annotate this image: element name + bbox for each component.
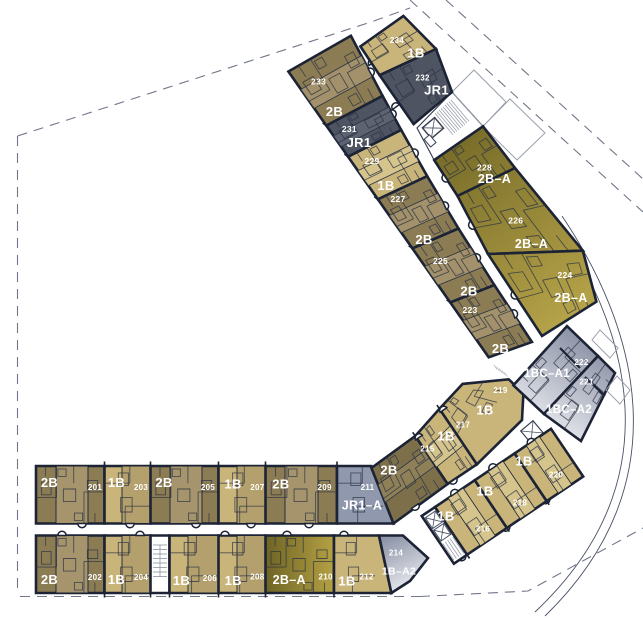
svg-text:227: 227	[390, 194, 405, 204]
svg-text:2B: 2B	[492, 341, 509, 356]
svg-text:202: 202	[88, 573, 102, 582]
svg-text:1B: 1B	[515, 454, 532, 469]
svg-text:209: 209	[317, 483, 331, 492]
svg-text:1B: 1B	[225, 573, 242, 588]
svg-text:2B: 2B	[272, 476, 289, 491]
svg-text:2B–A: 2B–A	[478, 172, 511, 186]
svg-text:2B: 2B	[415, 232, 432, 247]
svg-text:2B: 2B	[155, 475, 172, 490]
svg-text:2B: 2B	[380, 463, 397, 478]
svg-text:2B–A: 2B–A	[273, 573, 306, 587]
svg-text:219: 219	[493, 386, 507, 395]
svg-text:225: 225	[433, 256, 448, 266]
svg-text:1B: 1B	[437, 429, 454, 444]
svg-text:1B: 1B	[108, 475, 125, 490]
svg-text:211: 211	[361, 483, 375, 492]
svg-text:220: 220	[549, 471, 563, 480]
svg-text:226: 226	[508, 216, 523, 226]
svg-text:206: 206	[203, 574, 217, 583]
svg-text:204: 204	[134, 573, 148, 582]
svg-text:216: 216	[476, 525, 490, 534]
svg-text:1B: 1B	[377, 178, 394, 193]
svg-text:228: 228	[477, 163, 492, 173]
svg-text:1B: 1B	[108, 572, 125, 587]
svg-text:2B: 2B	[41, 475, 58, 490]
svg-text:224: 224	[557, 270, 572, 280]
svg-text:1B: 1B	[476, 403, 493, 418]
svg-text:208: 208	[250, 573, 264, 582]
svg-text:201: 201	[88, 483, 102, 492]
svg-text:1B: 1B	[338, 573, 355, 588]
svg-text:210: 210	[318, 573, 332, 582]
svg-text:JR1: JR1	[347, 135, 372, 150]
svg-text:1B: 1B	[407, 46, 424, 61]
svg-text:222: 222	[574, 358, 588, 367]
svg-text:218: 218	[513, 499, 527, 508]
svg-text:203: 203	[134, 483, 148, 492]
svg-text:2B–A: 2B–A	[554, 291, 587, 305]
svg-text:232: 232	[415, 74, 429, 83]
svg-text:1B: 1B	[437, 509, 454, 524]
svg-text:214: 214	[389, 549, 403, 558]
svg-text:1B: 1B	[476, 484, 493, 499]
svg-text:215: 215	[420, 445, 434, 454]
svg-text:231: 231	[342, 124, 357, 134]
svg-text:JR1–A: JR1–A	[342, 498, 382, 512]
svg-text:233: 233	[311, 77, 326, 87]
svg-text:1BC–A2: 1BC–A2	[546, 404, 592, 416]
svg-text:217: 217	[456, 421, 470, 430]
svg-text:JR1: JR1	[424, 83, 449, 98]
svg-text:207: 207	[250, 483, 264, 492]
svg-text:2B–A: 2B–A	[515, 237, 548, 251]
svg-text:1B–A2: 1B–A2	[382, 566, 416, 578]
svg-text:2B: 2B	[460, 284, 477, 299]
svg-text:2B: 2B	[326, 104, 343, 119]
svg-text:223: 223	[462, 305, 477, 315]
svg-text:234: 234	[390, 36, 404, 45]
svg-text:1BC–A1: 1BC–A1	[524, 368, 570, 380]
svg-text:2B: 2B	[41, 572, 58, 587]
svg-text:1B: 1B	[224, 476, 241, 491]
svg-text:1B: 1B	[173, 573, 190, 588]
svg-text:221: 221	[579, 377, 593, 386]
svg-text:205: 205	[201, 483, 215, 492]
svg-text:229: 229	[364, 156, 379, 166]
svg-text:212: 212	[359, 573, 373, 582]
